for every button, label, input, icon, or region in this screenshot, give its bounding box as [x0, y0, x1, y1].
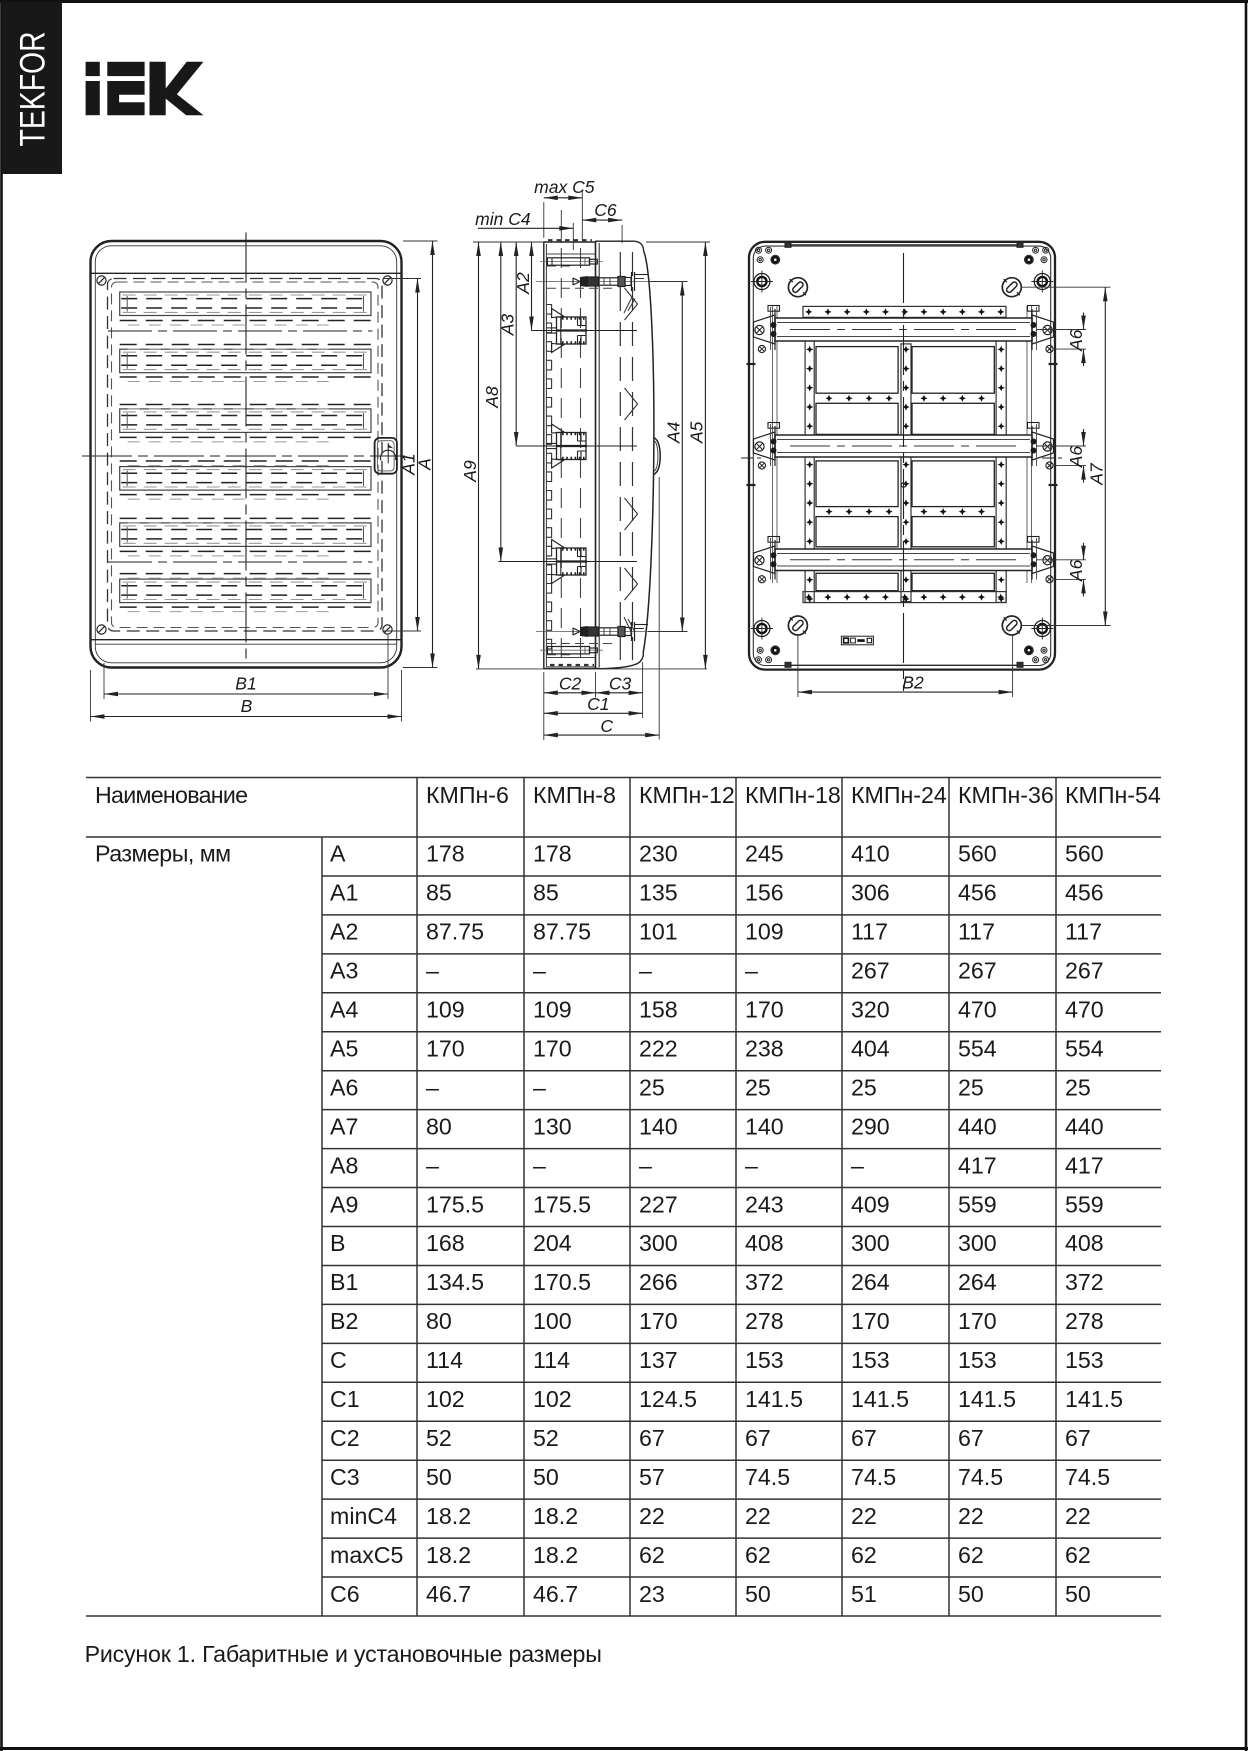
svg-text:C2: C2 [330, 1425, 360, 1451]
svg-text:300: 300 [958, 1230, 997, 1256]
svg-text:62: 62 [851, 1542, 877, 1568]
svg-text:25: 25 [639, 1074, 665, 1100]
svg-text:C1: C1 [587, 694, 609, 714]
svg-text:306: 306 [851, 880, 890, 906]
svg-text:25: 25 [851, 1074, 877, 1100]
svg-text:C3: C3 [609, 674, 632, 694]
svg-text:134.5: 134.5 [426, 1269, 484, 1295]
svg-text:227: 227 [639, 1191, 678, 1217]
svg-text:372: 372 [745, 1269, 784, 1295]
svg-text:51: 51 [851, 1581, 877, 1607]
svg-text:25: 25 [745, 1074, 771, 1100]
svg-text:559: 559 [1065, 1191, 1104, 1217]
svg-text:КМПн-18: КМПн-18 [745, 782, 841, 808]
svg-text:417: 417 [958, 1152, 997, 1178]
svg-text:B1: B1 [330, 1269, 358, 1295]
svg-text:141.5: 141.5 [745, 1386, 803, 1412]
svg-text:23: 23 [639, 1581, 665, 1607]
svg-text:A7: A7 [330, 1113, 358, 1139]
svg-text:A9: A9 [460, 460, 480, 483]
svg-text:A9: A9 [330, 1191, 358, 1217]
svg-text:18.2: 18.2 [426, 1503, 471, 1529]
svg-text:Размеры, мм: Размеры, мм [95, 841, 231, 867]
svg-text:A3: A3 [330, 958, 358, 984]
svg-text:102: 102 [426, 1386, 465, 1412]
svg-text:137: 137 [639, 1347, 678, 1373]
svg-text:153: 153 [958, 1347, 997, 1373]
svg-text:A6: A6 [1066, 446, 1086, 469]
svg-text:267: 267 [851, 958, 890, 984]
svg-text:67: 67 [1065, 1425, 1091, 1451]
svg-text:A: A [330, 841, 346, 867]
svg-text:278: 278 [1065, 1308, 1104, 1334]
svg-text:B2: B2 [330, 1308, 358, 1334]
svg-text:238: 238 [745, 1035, 784, 1061]
svg-text:18.2: 18.2 [533, 1503, 578, 1529]
svg-text:554: 554 [958, 1035, 997, 1061]
svg-text:87.75: 87.75 [426, 919, 484, 945]
svg-text:178: 178 [426, 841, 465, 867]
svg-text:410: 410 [851, 841, 890, 867]
svg-text:80: 80 [426, 1308, 452, 1334]
svg-text:min C4: min C4 [475, 209, 531, 229]
svg-text:130: 130 [533, 1113, 572, 1139]
svg-text:–: – [426, 958, 439, 984]
svg-text:141.5: 141.5 [958, 1386, 1016, 1412]
svg-text:Наименование: Наименование [95, 782, 247, 808]
svg-text:178: 178 [533, 841, 572, 867]
svg-text:266: 266 [639, 1269, 678, 1295]
svg-text:456: 456 [958, 880, 997, 906]
svg-text:22: 22 [958, 1503, 984, 1529]
svg-text:A6: A6 [330, 1074, 358, 1100]
svg-text:141.5: 141.5 [851, 1386, 909, 1412]
svg-text:117: 117 [958, 919, 995, 945]
svg-text:50: 50 [958, 1581, 984, 1607]
svg-text:470: 470 [958, 997, 997, 1023]
svg-text:Рисунок 1. Габаритные и устано: Рисунок 1. Габаритные и установочные раз… [85, 1641, 602, 1667]
svg-text:25: 25 [958, 1074, 984, 1100]
svg-text:A4: A4 [663, 421, 683, 444]
svg-text:67: 67 [851, 1425, 877, 1451]
svg-text:560: 560 [958, 841, 997, 867]
svg-text:170: 170 [533, 1035, 572, 1061]
svg-text:124.5: 124.5 [639, 1386, 697, 1412]
svg-text:max C5: max C5 [534, 177, 595, 197]
svg-text:74.5: 74.5 [745, 1464, 790, 1490]
svg-text:290: 290 [851, 1113, 890, 1139]
svg-text:–: – [533, 1074, 546, 1100]
svg-text:A1: A1 [399, 453, 419, 475]
svg-text:–: – [426, 1074, 439, 1100]
svg-text:141.5: 141.5 [1065, 1386, 1123, 1412]
svg-text:417: 417 [1065, 1152, 1104, 1178]
svg-text:170: 170 [851, 1308, 890, 1334]
svg-text:175.5: 175.5 [533, 1191, 591, 1217]
svg-text:КМПн-24: КМПн-24 [851, 782, 947, 808]
svg-text:TEKFOR: TEKFOR [12, 31, 52, 146]
svg-text:A5: A5 [330, 1035, 358, 1061]
svg-text:52: 52 [533, 1425, 559, 1451]
svg-text:440: 440 [1065, 1113, 1104, 1139]
svg-text:КМПн-6: КМПн-6 [426, 782, 509, 808]
svg-text:109: 109 [426, 997, 465, 1023]
svg-text:85: 85 [426, 880, 452, 906]
svg-text:114: 114 [533, 1347, 570, 1373]
svg-text:C1: C1 [330, 1386, 360, 1412]
svg-text:114: 114 [426, 1347, 463, 1373]
svg-text:57: 57 [639, 1464, 665, 1490]
svg-text:101: 101 [639, 919, 678, 945]
svg-text:222: 222 [639, 1035, 678, 1061]
svg-text:170: 170 [958, 1308, 997, 1334]
svg-text:–: – [851, 1152, 864, 1178]
svg-text:A6: A6 [1066, 329, 1086, 352]
svg-text:264: 264 [851, 1269, 890, 1295]
svg-text:67: 67 [958, 1425, 984, 1451]
svg-text:456: 456 [1065, 880, 1104, 906]
svg-text:–: – [533, 958, 546, 984]
svg-text:404: 404 [851, 1035, 890, 1061]
svg-text:408: 408 [745, 1230, 784, 1256]
svg-text:175.5: 175.5 [426, 1191, 484, 1217]
svg-text:КМПн-36: КМПн-36 [958, 782, 1054, 808]
svg-text:62: 62 [1065, 1542, 1091, 1568]
svg-text:85: 85 [533, 880, 559, 906]
svg-text:409: 409 [851, 1191, 890, 1217]
svg-text:278: 278 [745, 1308, 784, 1334]
svg-text:46.7: 46.7 [426, 1581, 471, 1607]
svg-text:50: 50 [1065, 1581, 1091, 1607]
svg-text:170: 170 [426, 1035, 465, 1061]
svg-text:A2: A2 [330, 919, 358, 945]
svg-text:168: 168 [426, 1230, 465, 1256]
svg-text:440: 440 [958, 1113, 997, 1139]
svg-text:74.5: 74.5 [958, 1464, 1003, 1490]
svg-text:18.2: 18.2 [533, 1542, 578, 1568]
svg-text:245: 245 [745, 841, 784, 867]
svg-text:300: 300 [851, 1230, 890, 1256]
svg-text:C2: C2 [559, 674, 582, 694]
svg-text:22: 22 [1065, 1503, 1091, 1529]
svg-text:–: – [639, 958, 652, 984]
svg-text:117: 117 [1065, 919, 1102, 945]
svg-text:–: – [745, 958, 758, 984]
svg-text:267: 267 [958, 958, 997, 984]
svg-text:B: B [241, 696, 253, 716]
svg-text:52: 52 [426, 1425, 452, 1451]
svg-text:КМПн-54: КМПн-54 [1065, 782, 1161, 808]
svg-text:62: 62 [639, 1542, 665, 1568]
svg-text:560: 560 [1065, 841, 1104, 867]
svg-text:230: 230 [639, 841, 678, 867]
svg-text:18.2: 18.2 [426, 1542, 471, 1568]
svg-text:87.75: 87.75 [533, 919, 591, 945]
svg-text:372: 372 [1065, 1269, 1104, 1295]
svg-text:–: – [426, 1152, 439, 1178]
svg-text:74.5: 74.5 [1065, 1464, 1110, 1490]
svg-text:КМПн-12: КМПн-12 [639, 782, 735, 808]
svg-text:22: 22 [639, 1503, 665, 1529]
svg-text:158: 158 [639, 997, 678, 1023]
svg-text:A8: A8 [482, 386, 502, 409]
svg-text:153: 153 [851, 1347, 890, 1373]
svg-text:A4: A4 [330, 997, 358, 1023]
svg-text:204: 204 [533, 1230, 572, 1256]
svg-text:C6: C6 [330, 1581, 360, 1607]
svg-text:117: 117 [851, 919, 888, 945]
svg-text:minC4: minC4 [330, 1503, 397, 1529]
svg-text:62: 62 [745, 1542, 771, 1568]
svg-text:300: 300 [639, 1230, 678, 1256]
svg-text:50: 50 [426, 1464, 452, 1490]
svg-text:B: B [330, 1230, 345, 1256]
svg-text:109: 109 [533, 997, 572, 1023]
svg-text:–: – [745, 1152, 758, 1178]
svg-text:A1: A1 [330, 880, 358, 906]
svg-text:320: 320 [851, 997, 890, 1023]
svg-text:140: 140 [639, 1113, 678, 1139]
svg-text:62: 62 [958, 1542, 984, 1568]
svg-text:67: 67 [745, 1425, 771, 1451]
svg-text:153: 153 [1065, 1347, 1104, 1373]
svg-text:109: 109 [745, 919, 784, 945]
svg-text:267: 267 [1065, 958, 1104, 984]
svg-text:C: C [330, 1347, 347, 1373]
svg-text:559: 559 [958, 1191, 997, 1217]
svg-text:153: 153 [745, 1347, 784, 1373]
svg-text:170: 170 [745, 997, 784, 1023]
svg-text:100: 100 [533, 1308, 572, 1334]
svg-text:170.5: 170.5 [533, 1269, 591, 1295]
svg-text:170: 170 [639, 1308, 678, 1334]
svg-text:46.7: 46.7 [533, 1581, 578, 1607]
svg-text:–: – [639, 1152, 652, 1178]
svg-text:B2: B2 [902, 673, 924, 693]
svg-text:156: 156 [745, 880, 784, 906]
svg-text:C6: C6 [594, 200, 617, 220]
svg-text:50: 50 [533, 1464, 559, 1490]
svg-text:80: 80 [426, 1113, 452, 1139]
svg-text:maxC5: maxC5 [330, 1542, 403, 1568]
svg-text:135: 135 [639, 880, 678, 906]
svg-text:25: 25 [1065, 1074, 1091, 1100]
svg-text:102: 102 [533, 1386, 572, 1412]
svg-text:–: – [533, 1152, 546, 1178]
svg-text:140: 140 [745, 1113, 784, 1139]
svg-text:A5: A5 [686, 421, 706, 444]
svg-text:67: 67 [639, 1425, 665, 1451]
svg-text:22: 22 [851, 1503, 877, 1529]
svg-text:B1: B1 [235, 674, 256, 694]
svg-text:264: 264 [958, 1269, 997, 1295]
svg-text:C3: C3 [330, 1464, 360, 1490]
svg-text:22: 22 [745, 1503, 771, 1529]
svg-text:408: 408 [1065, 1230, 1104, 1256]
svg-text:C: C [600, 716, 613, 736]
svg-text:74.5: 74.5 [851, 1464, 896, 1490]
svg-text:50: 50 [745, 1581, 771, 1607]
svg-text:A6: A6 [1066, 559, 1086, 582]
svg-text:A8: A8 [330, 1152, 358, 1178]
svg-text:470: 470 [1065, 997, 1104, 1023]
svg-text:243: 243 [745, 1191, 784, 1217]
svg-text:554: 554 [1065, 1035, 1104, 1061]
svg-text:КМПн-8: КМПн-8 [533, 782, 616, 808]
svg-text:A7: A7 [1086, 462, 1106, 486]
